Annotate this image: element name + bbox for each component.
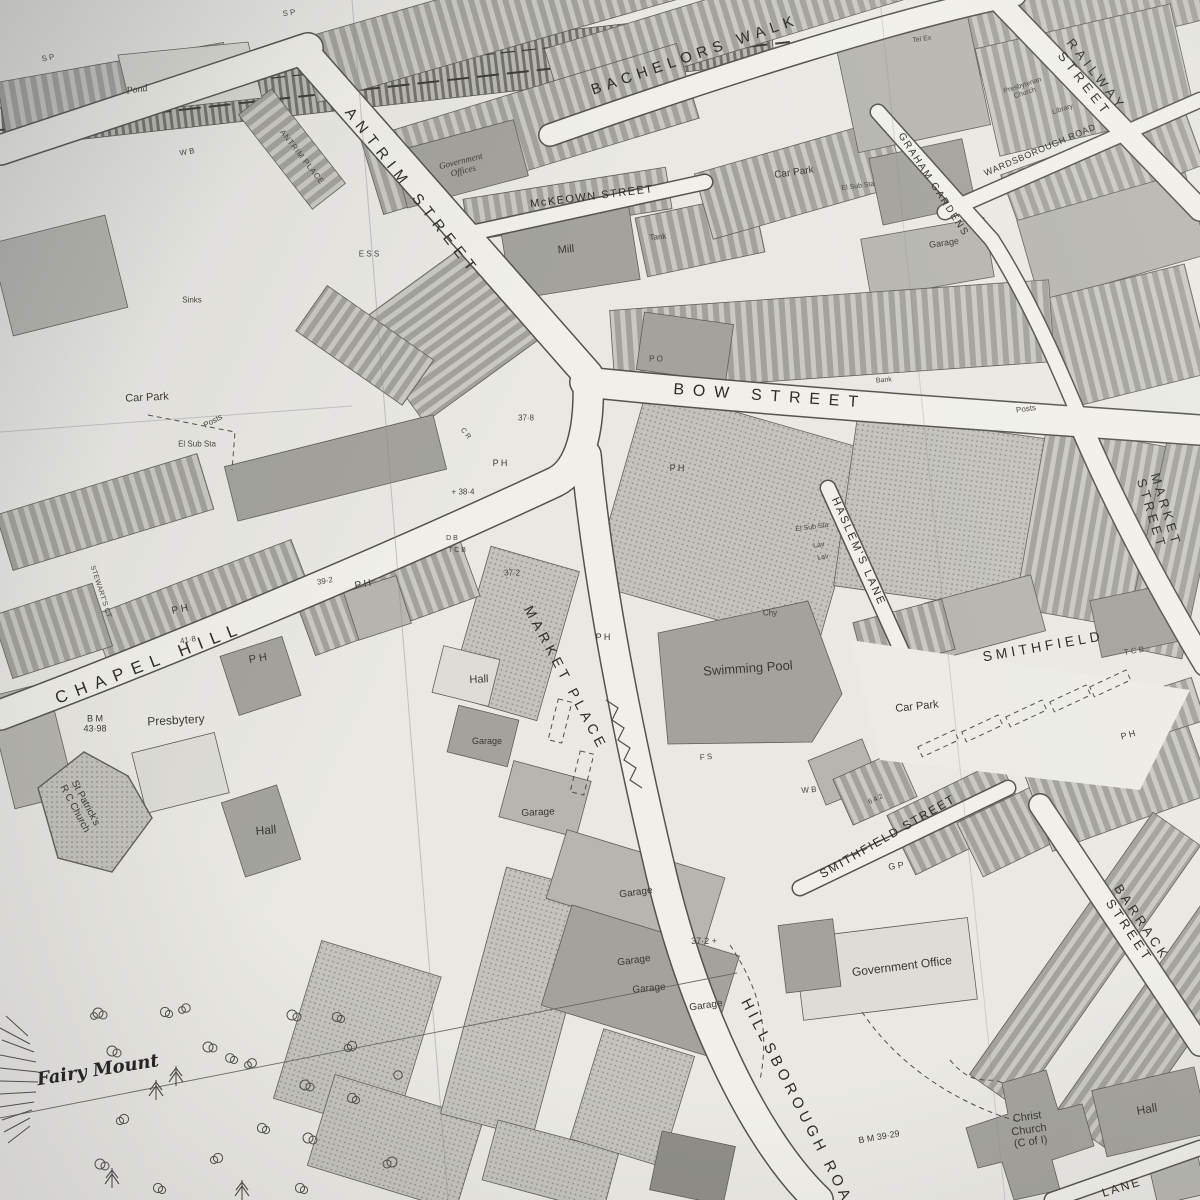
map-label-st-patrick-s-r-c-church-55: St Patrick's R C Church bbox=[58, 778, 103, 835]
map-label-fairy-mount-81: Fairy Mount bbox=[36, 1051, 161, 1091]
map-label-b-m-39-29-80: B M 39·29 bbox=[858, 1128, 901, 1145]
map-label-sinks-26: Sinks bbox=[182, 295, 202, 304]
map-label-t-c-b-77: T C B bbox=[1123, 645, 1145, 658]
map-label-p-h-47: P H bbox=[171, 603, 190, 618]
street-label-antrim-place-16: ANTRIM PLACE bbox=[278, 128, 326, 186]
map-label-presbyterian-church-34: Presbyterian Church bbox=[1003, 76, 1045, 103]
map-label-s-p-20: S P bbox=[282, 8, 296, 19]
map-label-p-h-44: P H bbox=[493, 458, 508, 468]
map-label-christ-church-c-of-i-79: Christ Church (C of I) bbox=[1009, 1109, 1049, 1151]
map: ANTRIM STREETBACHELORS WALKMcKEOWN STREE… bbox=[0, 0, 1200, 1200]
map-label-w-b-21: W B bbox=[179, 146, 195, 158]
map-label-garage-58: Garage bbox=[472, 736, 502, 746]
map-label-pond-18: Pond bbox=[126, 83, 149, 97]
map-label-el-sub-sta-69: El Sub Sta bbox=[795, 522, 829, 535]
map-label-c-r-41: C R bbox=[458, 427, 472, 441]
map-label-hall-56: Hall bbox=[255, 823, 277, 839]
map-label-d-b-42: D B bbox=[446, 535, 458, 543]
map-label-library-35: Library bbox=[1052, 103, 1075, 117]
map-label-41-8-52: 41·8 bbox=[179, 634, 196, 646]
map-label-presbytery-54: Presbytery bbox=[147, 713, 205, 730]
map-label-p-h-48: P H bbox=[248, 651, 268, 667]
map-label-s-p-19: S P bbox=[41, 52, 55, 63]
map-label-tank-24: Tank bbox=[649, 232, 667, 243]
map-label-37-2-65: 37·2 + bbox=[691, 936, 717, 946]
map-label-hall-57: Hall bbox=[469, 673, 489, 687]
street-label-wardsborough-road-6: WARDSBOROUGH ROAD bbox=[983, 122, 1098, 179]
map-label-e-s-s-25: E S S bbox=[359, 249, 379, 258]
map-label-39-2-51: 39·2 bbox=[316, 575, 333, 587]
map-label-p-h-45: P H bbox=[670, 463, 685, 473]
street-label-market-place-10: MARKET PLACE bbox=[521, 603, 611, 753]
map-label-37-8-39: 37·8 bbox=[518, 413, 534, 422]
map-label-el-sub-sta-29: El Sub Sta bbox=[178, 439, 216, 448]
street-label-mckeown-street-2: McKEOWN STREET bbox=[530, 183, 655, 211]
map-label-government-offices-22: Government Offices bbox=[438, 151, 486, 182]
map-label-p-o-36: P O bbox=[649, 354, 663, 363]
map-label-car-park-30: Car Park bbox=[774, 165, 815, 182]
map-label-38-4-40: + 38·4 bbox=[452, 487, 475, 496]
map-label-el-sub-sta-31: El Sub Sta bbox=[841, 181, 875, 194]
street-label-barrack-street-13: BARRACK STREET bbox=[1098, 882, 1172, 972]
map-label-p-h-50: P H bbox=[1119, 728, 1136, 742]
street-label-market-street-7: MARKET STREET bbox=[1133, 471, 1184, 552]
map-label-37-2-64: 37·2 bbox=[504, 568, 520, 577]
map-label-garage-62: Garage bbox=[632, 982, 666, 996]
map-label-garage-63: Garage bbox=[689, 998, 724, 1014]
map-label-garage-59: Garage bbox=[521, 806, 555, 819]
map-label-mill-23: Mill bbox=[557, 243, 575, 257]
map-label-garage-32: Garage bbox=[928, 236, 959, 250]
map-label-car-park-76: Car Park bbox=[895, 698, 939, 715]
map-label-b-m-43-98-53: B M 43·98 bbox=[83, 714, 106, 735]
street-label-bow-street-3: BOW STREET bbox=[673, 381, 868, 413]
map-label-chy-66: Chy bbox=[763, 608, 777, 617]
map-label-w-b-72: W B bbox=[801, 785, 817, 795]
street-label-lane-15: LANE bbox=[1100, 1175, 1143, 1200]
street-label-smithfield-11: SMITHFIELD bbox=[981, 627, 1104, 664]
street-label-smithfield-street-12: SMITHFIELD STREET bbox=[818, 792, 959, 881]
map-label-lav-70: Lav bbox=[813, 541, 825, 551]
map-label-bank-37: Bank bbox=[876, 376, 893, 385]
street-label-bachelors-walk-1: BACHELORS WALK bbox=[589, 11, 801, 98]
map-label-t-c-b-43: T C B bbox=[448, 547, 466, 555]
map-label-f-s-67: F S bbox=[699, 752, 712, 762]
map-label-swimming-pool-68: Swimming Pool bbox=[703, 658, 793, 679]
map-label-car-park-27: Car Park bbox=[125, 391, 169, 406]
labels-layer: ANTRIM STREETBACHELORS WALKMcKEOWN STREE… bbox=[0, 0, 1200, 1200]
street-label-antrim-street-0: ANTRIM STREET bbox=[341, 105, 483, 280]
map-label-garage-60: Garage bbox=[619, 885, 654, 901]
map-label-garage-61: Garage bbox=[617, 953, 652, 969]
map-label-government-office-75: Government Office bbox=[851, 954, 952, 980]
street-label-hillsborough-road-14: HILLSBOROUGH ROAD bbox=[737, 996, 863, 1200]
map-label-posts-38: Posts bbox=[1015, 403, 1036, 415]
map-label-lav-71: Lav bbox=[817, 553, 829, 563]
map-label-hall-78: Hall bbox=[1136, 1101, 1159, 1118]
street-label-graham-gardens-5: GRAHAM GARDENS bbox=[895, 131, 971, 239]
map-label-p-h-46: P H bbox=[354, 578, 372, 592]
map-label-g-p-73: G P bbox=[888, 860, 905, 872]
street-label-chapel-hill-9: CHAPEL HILL bbox=[52, 618, 247, 708]
map-label-6-4-2-74: 6 4 2 bbox=[867, 793, 885, 807]
map-label-tel-ex-33: Tel Ex bbox=[912, 35, 932, 46]
map-label-p-h-49: P H bbox=[596, 632, 611, 642]
street-label-haslem-s-lane-8: HASLEM'S LANE bbox=[828, 496, 888, 609]
map-label-posts-28: Posts bbox=[202, 412, 224, 430]
street-label-railway-street-4: RAILWAY STREET bbox=[1044, 27, 1135, 132]
street-label-stewart-s-ct-17: STEWART'S CT bbox=[88, 565, 112, 619]
